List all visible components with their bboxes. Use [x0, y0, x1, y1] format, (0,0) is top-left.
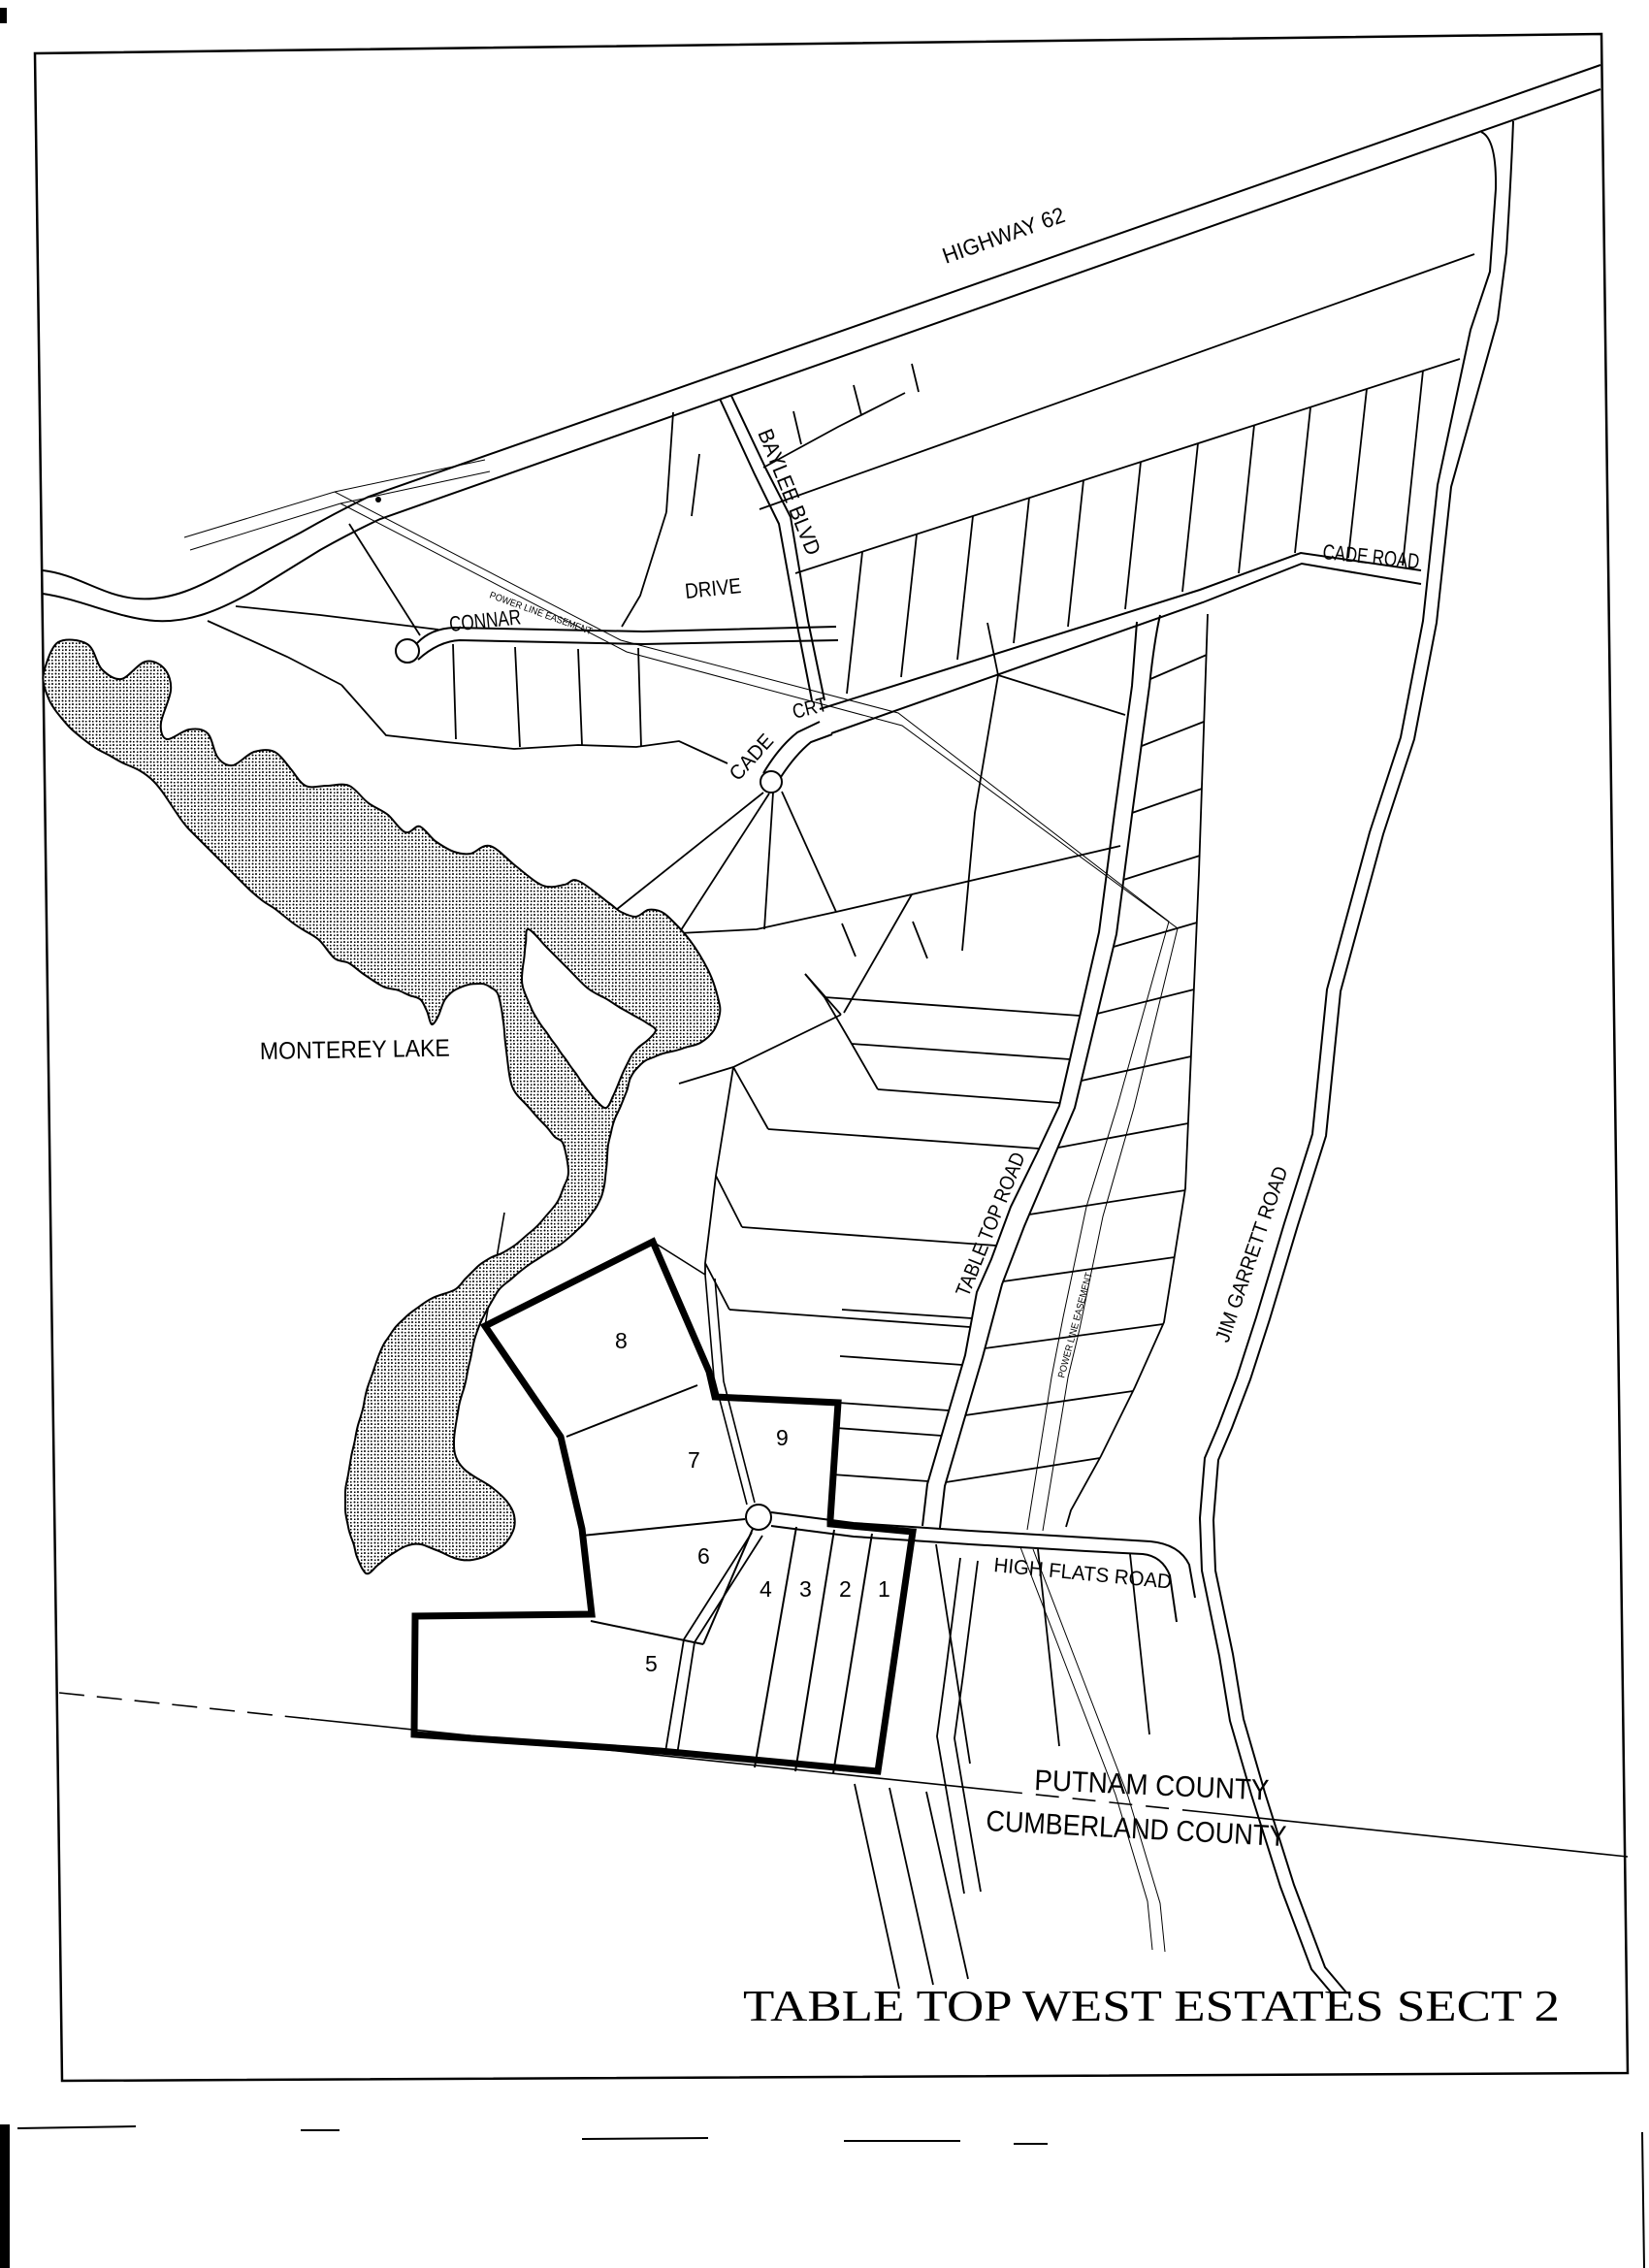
svg-text:1: 1: [878, 1576, 890, 1602]
svg-text:7: 7: [688, 1447, 700, 1473]
svg-text:3: 3: [799, 1576, 812, 1602]
svg-text:5: 5: [645, 1651, 658, 1676]
svg-text:TABLE TOP WEST ESTATES SECT 2: TABLE TOP WEST ESTATES SECT 2: [743, 1981, 1560, 2030]
svg-text:6: 6: [697, 1543, 710, 1569]
svg-text:4: 4: [760, 1576, 772, 1602]
svg-text:MONTEREY LAKE: MONTEREY LAKE: [260, 1035, 450, 1065]
svg-text:9: 9: [776, 1425, 789, 1450]
svg-text:2: 2: [839, 1576, 852, 1602]
svg-text:8: 8: [615, 1328, 628, 1353]
